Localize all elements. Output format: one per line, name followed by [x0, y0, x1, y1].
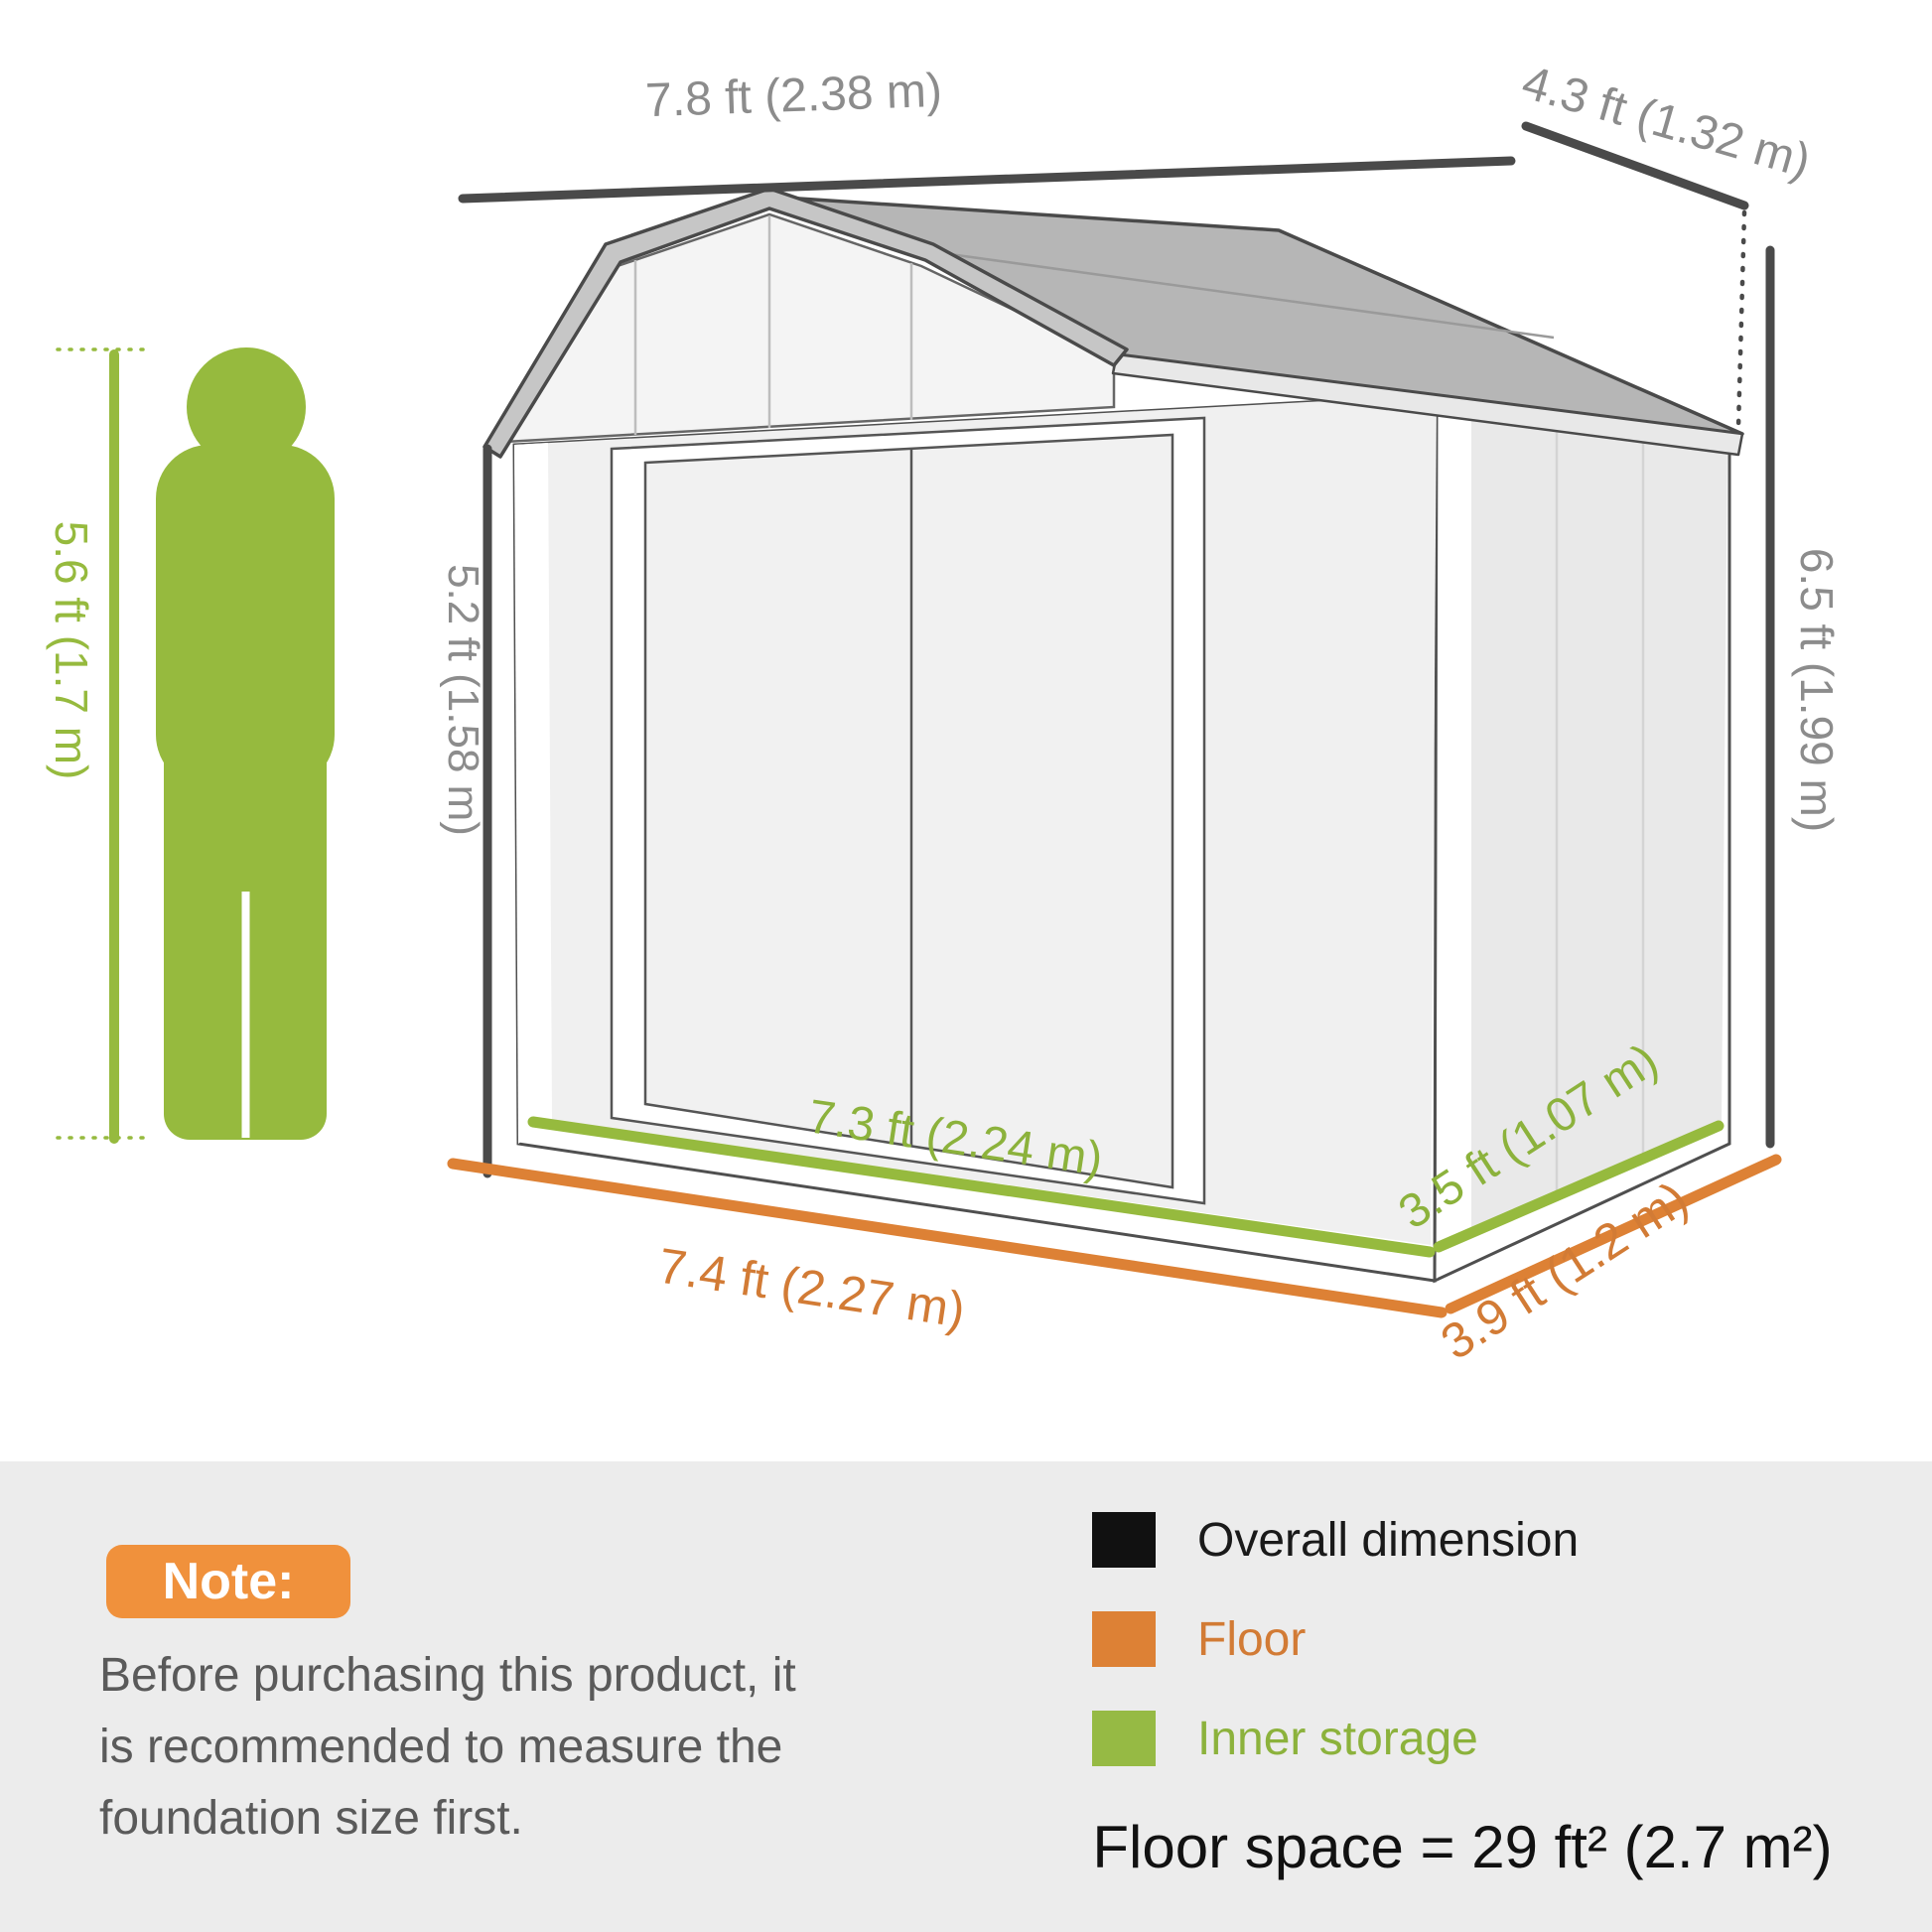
legend-label-inner-storage: Inner storage [1197, 1712, 1478, 1766]
note-line-3: foundation size first. [99, 1783, 973, 1855]
legend-item-overall: Overall dimension [1092, 1509, 1579, 1571]
floor-width-label: 7.4 ft (2.27 m) [654, 1237, 968, 1337]
note-line-1: Before purchasing this product, it [99, 1640, 973, 1712]
legend-item-inner-storage: Inner storage [1092, 1708, 1579, 1769]
overall-dimension-swatch [1092, 1512, 1156, 1568]
note-text: Before purchasing this product, it is re… [99, 1640, 973, 1855]
legend-label-floor: Floor [1197, 1612, 1306, 1667]
door-panels [645, 435, 1173, 1187]
legend: Overall dimension Floor Inner storage [1092, 1509, 1579, 1807]
total-height-label: 6.5 ft (1.99 m) [1791, 548, 1843, 832]
note-badge: Note: [106, 1545, 350, 1618]
inner-storage-swatch [1092, 1711, 1156, 1766]
person-height-dimension: 5.6 ft (1.7 m) [46, 349, 151, 1139]
floor-space-summary: Floor space = 29 ft² (2.7 m²) [993, 1813, 1932, 1881]
note-title: Note: [163, 1552, 295, 1611]
legend-item-floor: Floor [1092, 1608, 1579, 1670]
legend-label-overall: Overall dimension [1197, 1513, 1579, 1568]
eave-height-label: 5.2 ft (1.58 m) [439, 564, 487, 836]
floor-swatch [1092, 1611, 1156, 1667]
roof-width-label: 7.8 ft (2.38 m) [644, 65, 942, 127]
person-height-label: 5.6 ft (1.7 m) [46, 521, 97, 780]
shed-dimension-diagram: 5.6 ft (1.7 m) [0, 0, 1932, 1932]
note-line-2: is recommended to measure the [99, 1712, 973, 1783]
person-silhouette [156, 347, 335, 1140]
roof-depth-label: 4.3 ft (1.32 m) [1516, 56, 1816, 188]
